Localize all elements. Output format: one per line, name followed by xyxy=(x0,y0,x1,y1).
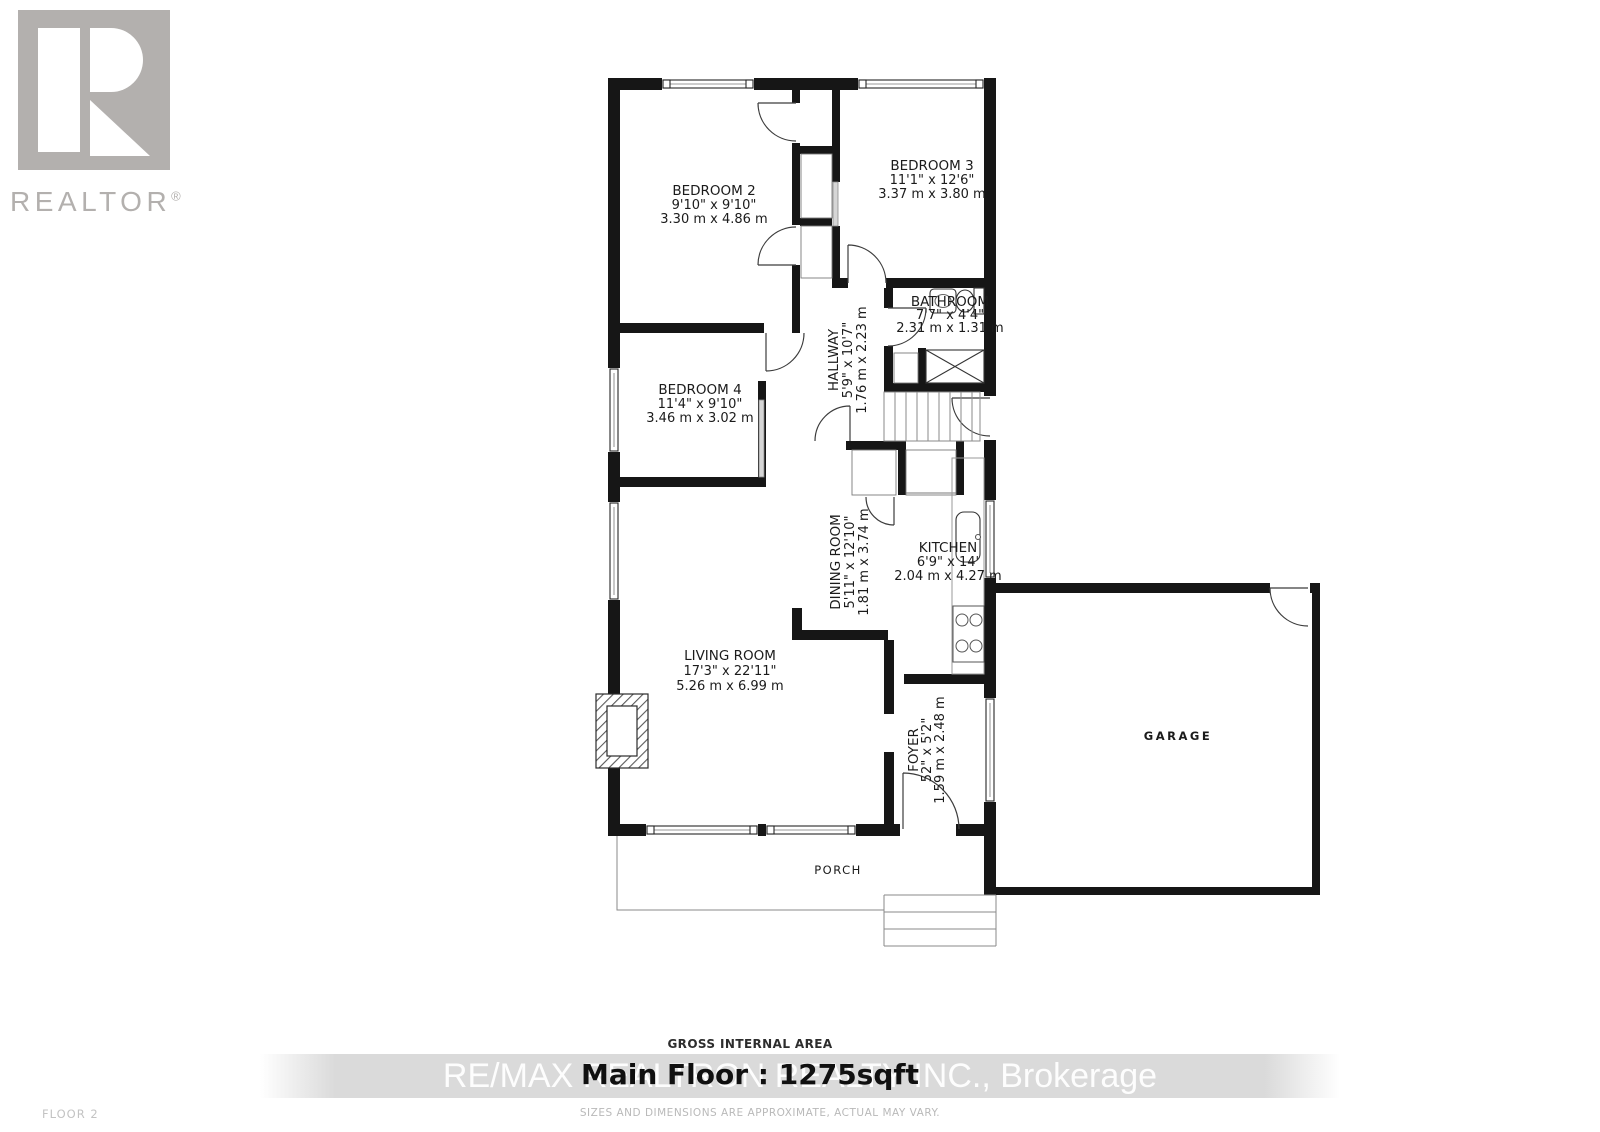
door-swing xyxy=(758,103,796,141)
porch-outline xyxy=(617,836,996,946)
window xyxy=(647,826,757,834)
floor-page-label: FLOOR 2 xyxy=(42,1107,99,1121)
realtor-logo-text: REALTOR® xyxy=(10,186,185,218)
bedroom2-name: BEDROOM 2 xyxy=(672,183,755,199)
dining-metric: 1.81 m x 3.74 m xyxy=(857,508,872,615)
hallway-imperial: 5'9" x 10'7" xyxy=(841,322,856,398)
gross-internal-area-label: GROSS INTERNAL AREA xyxy=(0,1037,1500,1051)
registered-mark: ® xyxy=(171,189,181,204)
stove-icon xyxy=(953,606,984,662)
bedroom4-metric: 3.46 m x 3.02 m xyxy=(646,411,753,426)
floor-plan: BEDROOM 2 9'10" x 9'10" 3.30 m x 4.86 m … xyxy=(0,0,1600,1132)
window xyxy=(986,501,994,577)
door-swing xyxy=(1270,588,1308,626)
dining-name: DINING ROOM xyxy=(828,514,844,610)
door-swing xyxy=(758,227,796,265)
hallway-metric: 1.76 m x 2.23 m xyxy=(855,306,870,413)
sliding-door xyxy=(759,400,764,477)
window xyxy=(986,699,994,801)
floor-title: Main Floor : 1275sqft xyxy=(0,1058,1500,1091)
room-label-living: LIVING ROOM 17'3" x 22'11" 5.26 m x 6.99… xyxy=(676,648,783,694)
realtor-r-icon xyxy=(10,8,185,178)
living-name: LIVING ROOM xyxy=(684,648,776,664)
kitchen-imperial: 6'9" x 14' xyxy=(917,555,979,570)
room-label-hallway: HALLWAY 5'9" x 10'7" 1.76 m x 2.23 m xyxy=(826,306,870,413)
bedroom3-metric: 3.37 m x 3.80 m xyxy=(878,187,985,202)
stairs-icon xyxy=(884,392,980,441)
room-label-bedroom3: BEDROOM 3 11'1" x 12'6" 3.37 m x 3.80 m xyxy=(878,158,985,202)
window xyxy=(610,369,618,451)
kitchen-metric: 2.04 m x 4.27 m xyxy=(894,569,1001,584)
fireplace-icon xyxy=(596,694,648,768)
foyer-metric: 1.59 m x 2.48 m xyxy=(933,696,948,803)
room-label-bedroom2: BEDROOM 2 9'10" x 9'10" 3.30 m x 4.86 m xyxy=(660,183,767,227)
bedroom3-name: BEDROOM 3 xyxy=(890,158,973,174)
realtor-logo: REALTOR® xyxy=(10,8,185,218)
living-metric: 5.26 m x 6.99 m xyxy=(676,679,783,694)
doors xyxy=(758,103,1308,829)
hallway-name: HALLWAY xyxy=(826,328,842,391)
window xyxy=(767,826,855,834)
bathtub-icon xyxy=(926,350,984,383)
door-swing xyxy=(848,245,886,283)
bedroom3-imperial: 11'1" x 12'6" xyxy=(890,173,975,188)
disclaimer-text: SIZES AND DIMENSIONS ARE APPROXIMATE, AC… xyxy=(0,1107,1520,1119)
window xyxy=(610,503,618,599)
dining-imperial: 5'11" x 12'10" xyxy=(843,516,858,609)
sliding-door xyxy=(833,182,838,226)
room-label-foyer: FOYER 52" x 5'2" 1.59 m x 2.48 m xyxy=(906,696,948,803)
living-imperial: 17'3" x 22'11" xyxy=(684,664,777,679)
bedroom4-imperial: 11'4" x 9'10" xyxy=(658,397,743,412)
door-swing xyxy=(815,406,850,441)
kitchen-name: KITCHEN xyxy=(919,540,978,556)
bedroom2-metric: 3.30 m x 4.86 m xyxy=(660,212,767,227)
door-swing xyxy=(766,333,804,371)
room-label-dining: DINING ROOM 5'11" x 12'10" 1.81 m x 3.74… xyxy=(828,508,872,615)
room-label-porch: PORCH xyxy=(814,863,862,877)
window xyxy=(859,80,983,88)
bathroom-metric: 2.31 m x 1.31 m xyxy=(896,321,1003,336)
bedroom2-imperial: 9'10" x 9'10" xyxy=(672,198,757,213)
room-label-bedroom4: BEDROOM 4 11'4" x 9'10" 3.46 m x 3.02 m xyxy=(646,382,753,426)
realtor-wordmark: REALTOR xyxy=(10,186,171,217)
bedroom4-name: BEDROOM 4 xyxy=(658,382,741,398)
room-label-garage: GARAGE xyxy=(1144,729,1212,743)
window xyxy=(663,80,753,88)
